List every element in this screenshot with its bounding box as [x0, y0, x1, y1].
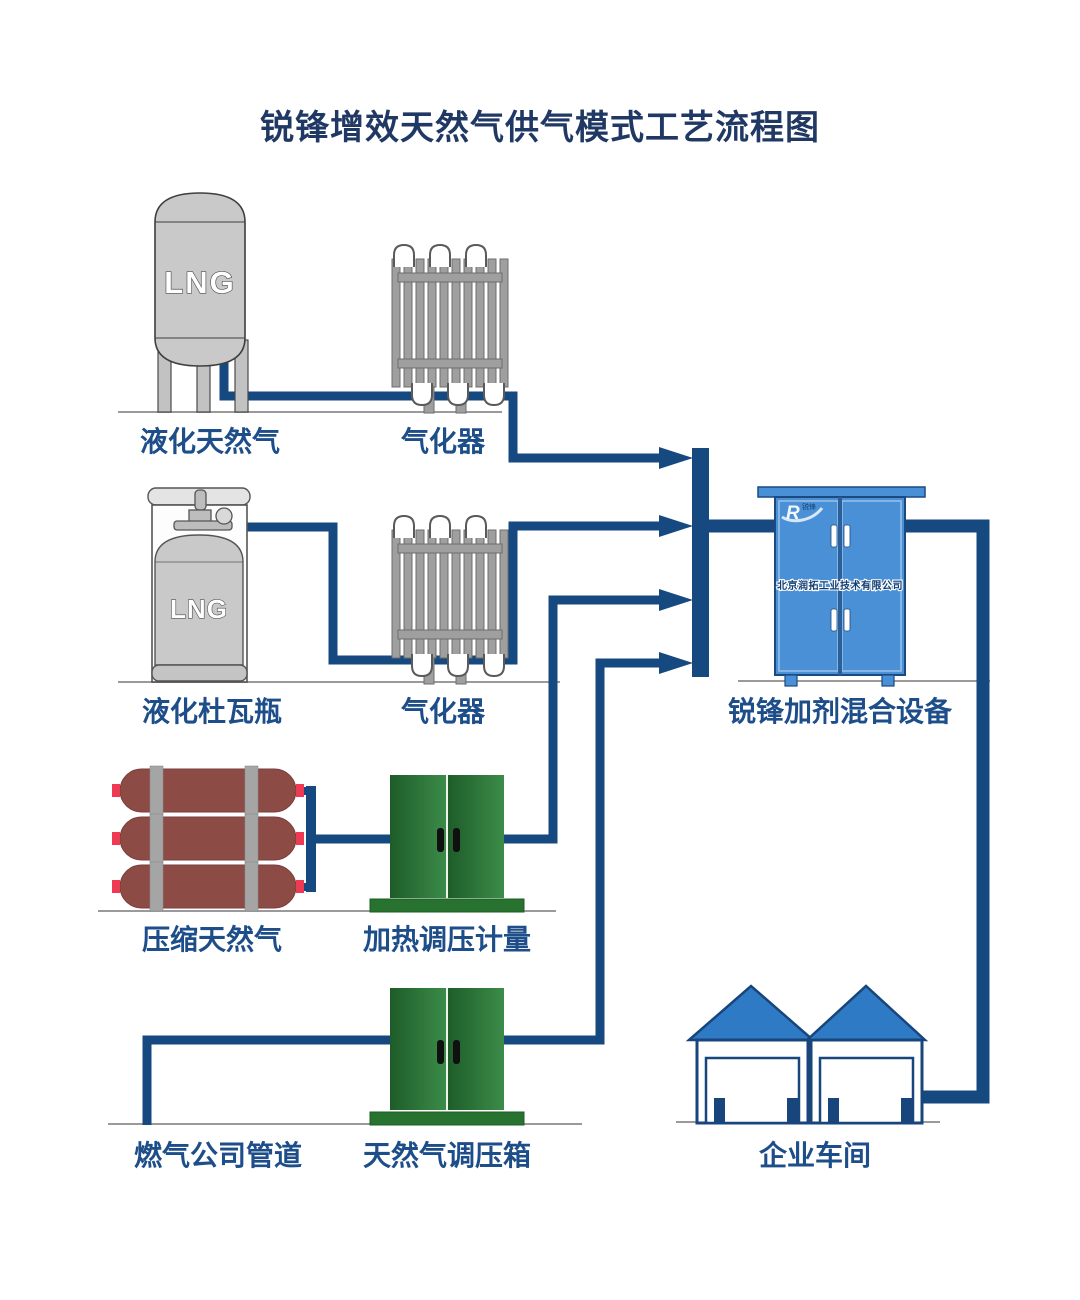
- lng-tank: LNG: [155, 193, 248, 412]
- cabinet-plinth: [370, 1112, 524, 1125]
- cng-cylinder: [120, 817, 296, 860]
- arrow-icon: [659, 652, 693, 674]
- dewar-tank-text: LNG: [170, 594, 228, 624]
- vaporizer-ubend: [448, 383, 468, 405]
- cng-cylinders: [112, 766, 304, 911]
- diagram-canvas: 锐锋增效天然气供气模式工艺流程图: [0, 0, 1080, 1300]
- door-handle: [831, 609, 837, 631]
- cng-valve-nub: [296, 832, 304, 845]
- vaporizer-ubend: [466, 516, 486, 538]
- regulator-cabinet: [370, 988, 524, 1125]
- vaporizer-ubend: [484, 383, 504, 405]
- label-vaporizer1: 气化器: [401, 420, 485, 460]
- label-dewar: 液化杜瓦瓶: [142, 690, 282, 730]
- arrowheads: [659, 447, 693, 674]
- arrow-icon: [659, 447, 693, 469]
- door-handle: [831, 525, 837, 547]
- label-workshop: 企业车间: [759, 1134, 871, 1174]
- logo-letter: R: [786, 503, 800, 524]
- vaporizer-ubend: [448, 654, 468, 676]
- vaporizer-crossbar: [398, 544, 502, 553]
- cng-valve-nub: [112, 880, 120, 893]
- workshop-roof: [689, 986, 813, 1040]
- workshop-post: [828, 1098, 839, 1123]
- dewar-base-rim: [152, 665, 247, 681]
- door-handle: [844, 525, 850, 547]
- tank-leg: [197, 362, 210, 412]
- cng-valve-nub: [296, 784, 304, 797]
- mixer-foot: [785, 675, 797, 686]
- workshop-buildings: [689, 986, 925, 1123]
- pipe-mixer-outlet: [901, 526, 983, 1097]
- vaporizer-ubend: [484, 654, 504, 676]
- arrow-icon: [659, 515, 693, 537]
- cng-cylinder: [120, 769, 296, 812]
- cng-strap: [150, 814, 163, 863]
- workshop-post: [901, 1098, 912, 1123]
- cng-strap: [150, 766, 163, 815]
- mixer-lid: [758, 487, 925, 497]
- collector-bar: [692, 448, 709, 677]
- vaporizer-crossbar: [398, 630, 502, 639]
- workshop-post: [787, 1098, 798, 1123]
- mixer-cabinet: R 锐锋 北京润拓工业技术有限公司: [758, 487, 925, 686]
- vaporizer-ubend: [394, 245, 414, 267]
- flow-diagram: LNG: [0, 0, 1080, 1300]
- cng-valve-nub: [112, 784, 120, 797]
- label-regulator: 天然气调压箱: [363, 1134, 531, 1174]
- door-handle: [453, 1040, 460, 1064]
- valve-stem-top: [195, 490, 206, 510]
- label-vaporizer2: 气化器: [401, 690, 485, 730]
- cng-valve-nub: [112, 832, 120, 845]
- vaporizer-ubend: [466, 245, 486, 267]
- workshop-roof: [807, 986, 925, 1040]
- cng-strap: [150, 862, 163, 911]
- vaporizer-ubend: [394, 516, 414, 538]
- cabinet-plinth: [370, 899, 524, 912]
- door-handle: [437, 1040, 444, 1064]
- dewar-bottle: LNG: [148, 488, 250, 682]
- mixer-foot: [882, 675, 894, 686]
- label-pipeline: 燃气公司管道: [134, 1134, 302, 1174]
- cng-strap: [245, 862, 258, 911]
- vaporizer-ubend: [430, 516, 450, 538]
- cng-strap: [245, 814, 258, 863]
- company-name-text: 北京润拓工业技术有限公司: [777, 579, 903, 592]
- vaporizer-crossbar: [398, 359, 502, 368]
- door-handle: [453, 828, 460, 852]
- vaporizer-ubend: [412, 654, 432, 676]
- vaporizer-crossbar: [398, 273, 502, 282]
- label-mixer: 锐锋加剂混合设备: [728, 690, 952, 730]
- heater-cabinet: [370, 775, 524, 912]
- workshop-post: [714, 1098, 725, 1123]
- cng-cylinder: [120, 865, 296, 908]
- cng-valve-nub: [296, 880, 304, 893]
- valve-gauge: [216, 508, 232, 524]
- vaporizer-1: [392, 245, 508, 413]
- label-heater: 加热调压计量: [363, 918, 531, 958]
- label-lng-tank: 液化天然气: [140, 420, 280, 460]
- arrow-icon: [659, 589, 693, 611]
- logo-subtext: 锐锋: [802, 502, 816, 511]
- door-handle: [437, 828, 444, 852]
- door-handle: [844, 609, 850, 631]
- cng-strap: [245, 766, 258, 815]
- label-cng: 压缩天然气: [142, 918, 282, 958]
- vaporizer-ubend: [412, 383, 432, 405]
- lng-tank-text: LNG: [164, 265, 235, 300]
- vaporizer-ubend: [430, 245, 450, 267]
